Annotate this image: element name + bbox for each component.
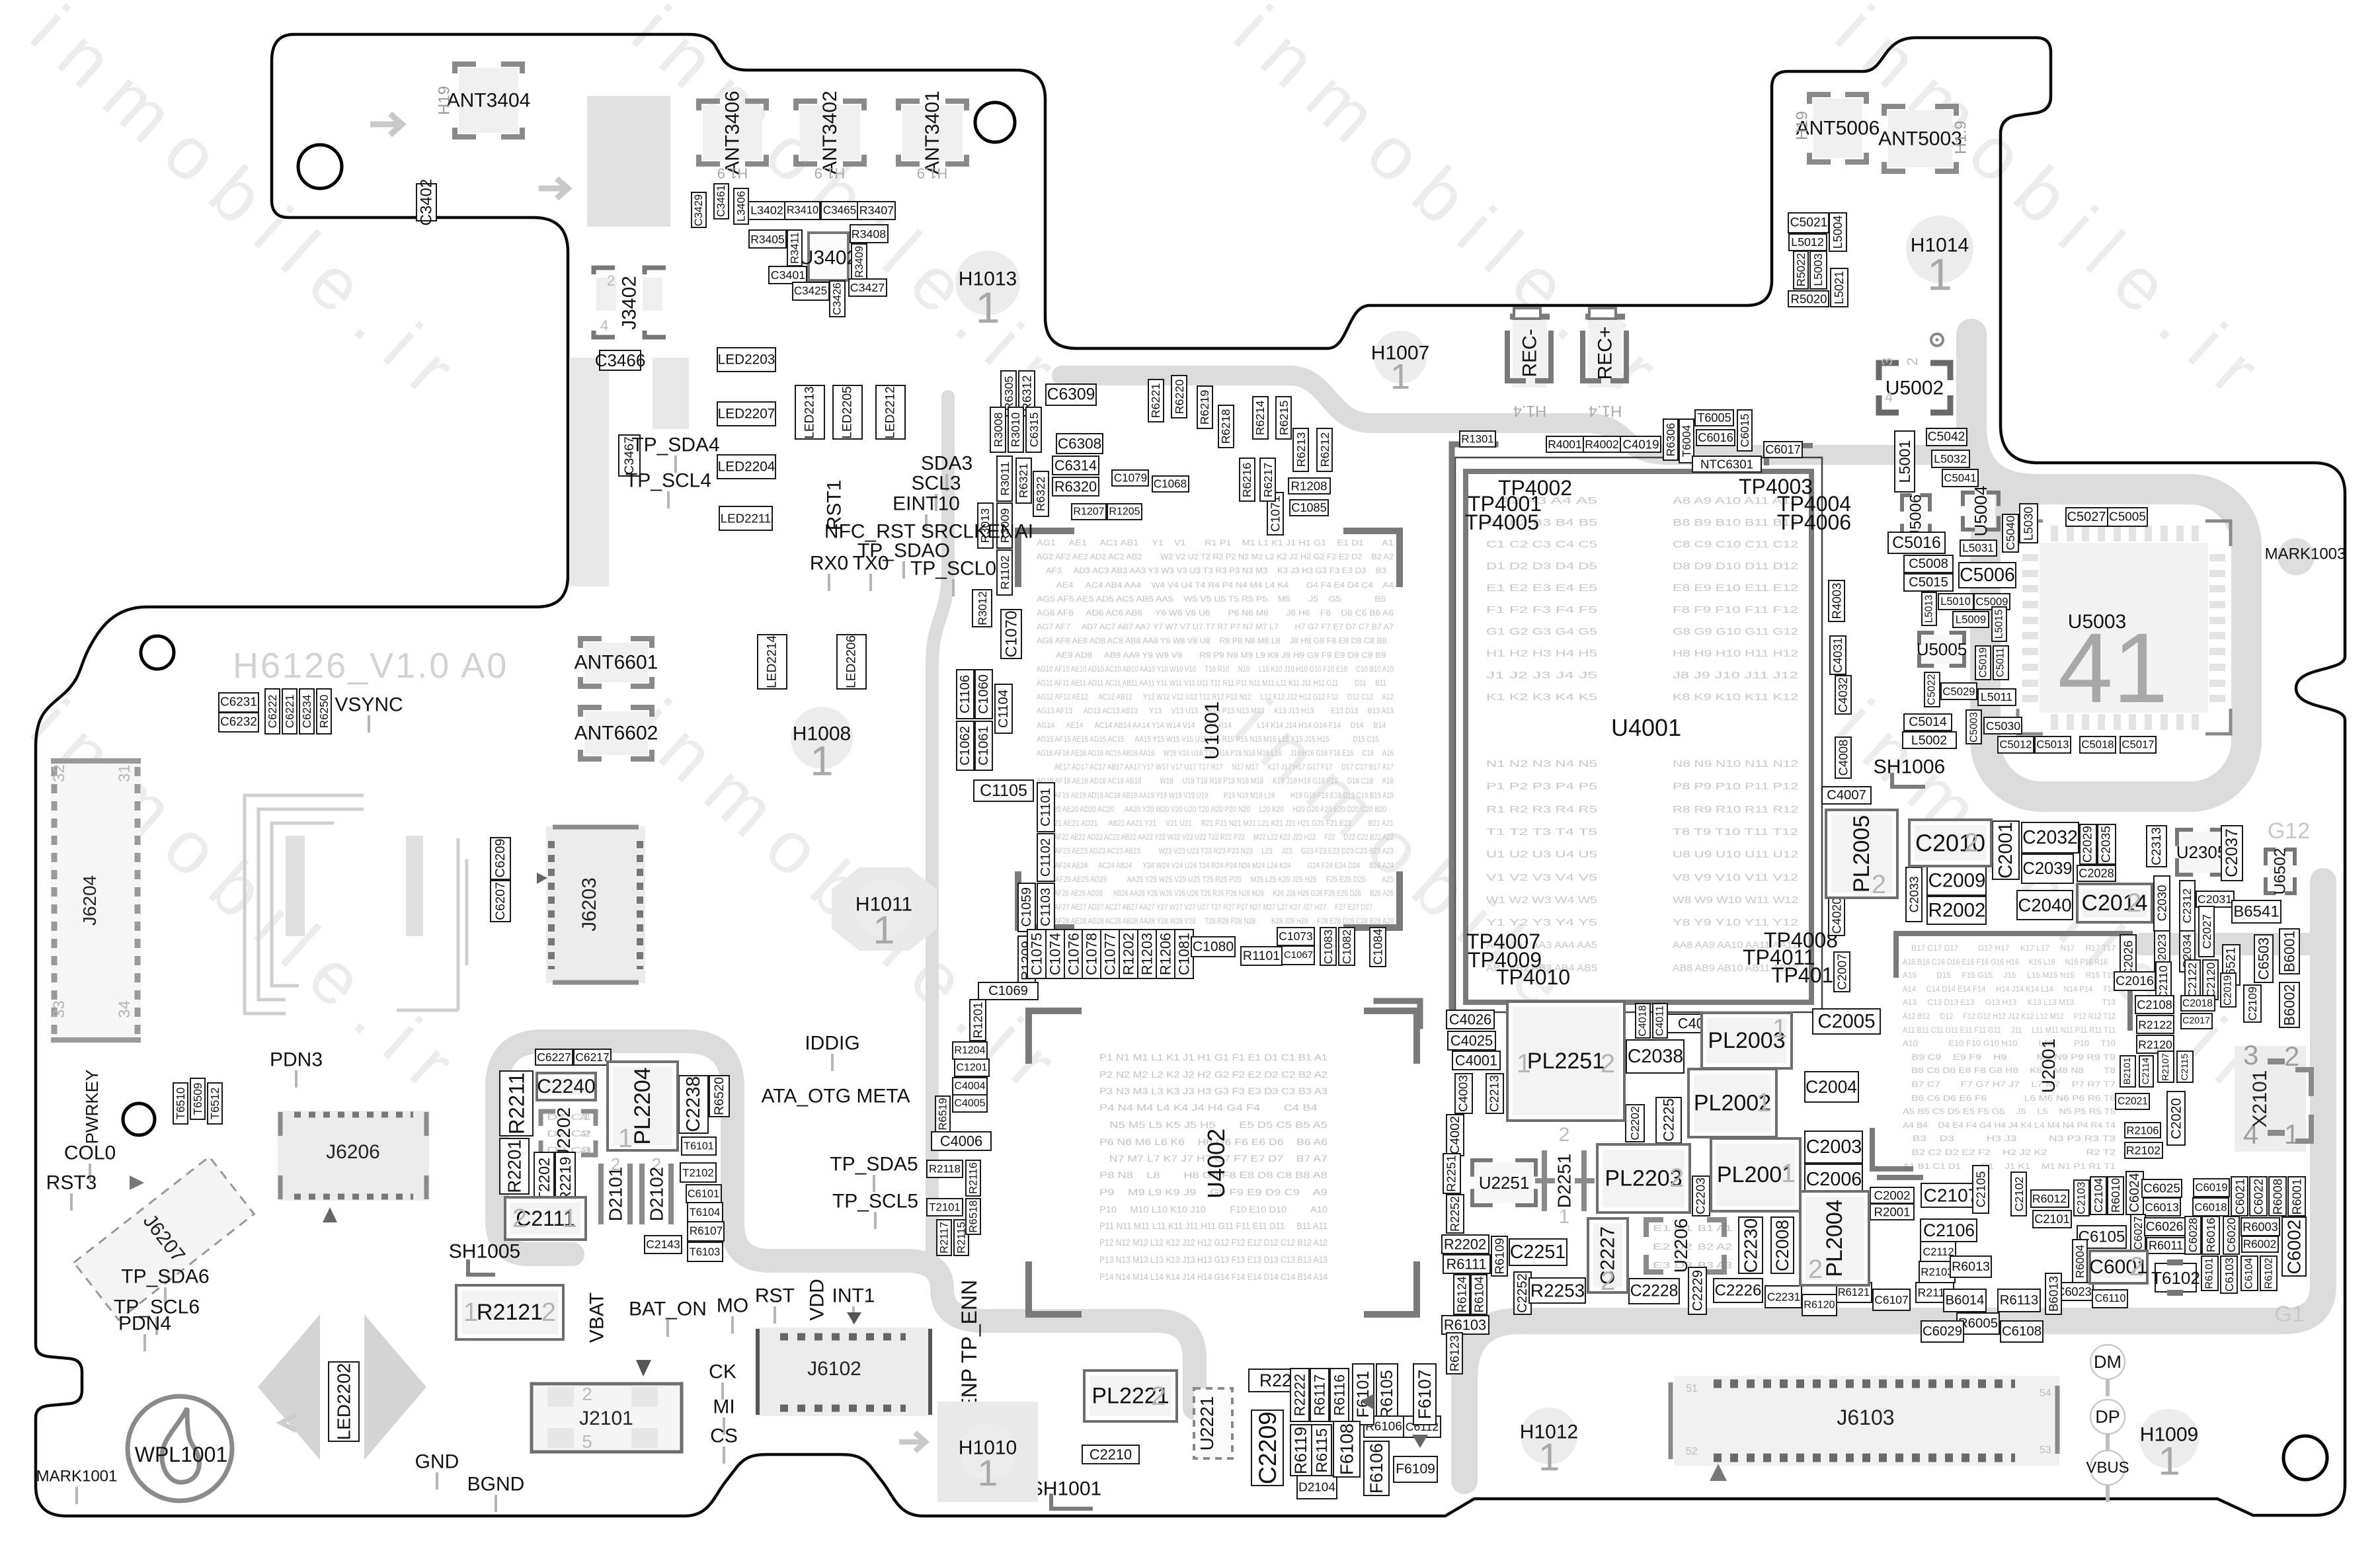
svg-text:C2210: C2210 xyxy=(1090,1447,1132,1463)
svg-text:C2103: C2103 xyxy=(2075,1181,2088,1214)
svg-text:C5012: C5012 xyxy=(1999,738,2032,751)
svg-text:RST3: RST3 xyxy=(46,1172,97,1194)
svg-text:C2003: C2003 xyxy=(1806,1136,1862,1158)
svg-text:PL2204: PL2204 xyxy=(630,1067,655,1144)
svg-text:R5022: R5022 xyxy=(1794,253,1807,287)
svg-text:A1 B1 C1 D1 G1 J1 K1: A1 B1 C1 D1 G1 J1 K1 M1 N1 P1 R1 T1 xyxy=(1903,1163,2116,1171)
svg-text:C4004: C4004 xyxy=(954,1081,985,1092)
svg-text:A15 D15 F15 G15: A15 D15 F15 G15 J15 L15 M15 N15 R15 T15 xyxy=(1903,972,2116,980)
svg-text:PL2251: PL2251 xyxy=(1527,1049,1605,1074)
svg-text:2: 2 xyxy=(582,1384,592,1404)
svg-text:A2: A2 xyxy=(580,1129,591,1138)
svg-text:AG7 AF7 AD7 AC7 AB7 AA7 Y7: AG7 AF7 AD7 AC7 AB7 AA7 Y7 W7 V7 U7 T7 R… xyxy=(1037,623,1394,631)
svg-text:RST: RST xyxy=(755,1285,795,1307)
svg-text:AG10 AF10 AE10 AD10 AC10 AB10: AG10 AF10 AE10 AD10 AC10 AB10 AA10 Y10 W… xyxy=(1037,666,1394,674)
svg-text:R2121: R2121 xyxy=(477,1300,543,1325)
svg-text:C1060: C1060 xyxy=(976,674,991,714)
svg-text:T6512: T6512 xyxy=(208,1088,221,1120)
svg-text:AG23 AF23 AE23 AD23 AC23 AB23: AG23 AF23 AE23 AD23 AC23 AB23 W23 V23 U2… xyxy=(1037,848,1394,855)
svg-text:SH1001: SH1001 xyxy=(1030,1478,1101,1500)
svg-text:AE9 AD9 AB9 AA9 Y9 W9 V9: AE9 AD9 AB9 AA9 Y9 W9 V9 R9 P9 N9 M9 L9 … xyxy=(1037,652,1394,660)
svg-text:U8 U9 U10 U11 U12: U8 U9 U10 U11 U12 xyxy=(1673,849,1798,860)
svg-text:AG28 AF28 AE28 AD28 AC28 AB28: AG28 AF28 AE28 AD28 AC28 AB28 AA28 Y28 W… xyxy=(1037,918,1394,926)
svg-text:R2252: R2252 xyxy=(1448,1196,1462,1232)
svg-text:INT1: INT1 xyxy=(832,1285,875,1307)
svg-text:C2115: C2115 xyxy=(2180,1054,2190,1081)
svg-text:C4005: C4005 xyxy=(954,1098,985,1109)
svg-text:C3461: C3461 xyxy=(715,185,727,217)
svg-text:R6004: R6004 xyxy=(2073,1244,2086,1278)
svg-text:1: 1 xyxy=(976,283,1000,332)
svg-text:R2118: R2118 xyxy=(929,1163,961,1175)
svg-text:AF20 AE20 AD20 AC20 AA20: AF20 AE20 AD20 AC20 AA20 Y20 W20 V20 U20… xyxy=(1037,806,1394,814)
svg-text:U2251: U2251 xyxy=(1479,1173,1530,1193)
svg-text:C2122: C2122 xyxy=(2186,963,2199,998)
svg-text:L3402: L3402 xyxy=(750,204,783,217)
svg-text:LED2206: LED2206 xyxy=(845,635,859,688)
svg-text:T6510: T6510 xyxy=(174,1088,187,1120)
svg-text:AG26 AF26 AE26 AD26 AB26: AG26 AF26 AE26 AD26 AB26 AA26 Y26 W26 V2… xyxy=(1037,890,1394,898)
svg-text:K8 K9 K10 K11 K12: K8 K9 K10 K11 K12 xyxy=(1673,692,1798,703)
svg-text:SH1006: SH1006 xyxy=(1874,756,1945,778)
svg-text:C2225: C2225 xyxy=(1661,1098,1677,1141)
svg-text:H1.9: H1.9 xyxy=(1952,121,1970,155)
svg-text:R2103: R2103 xyxy=(1921,1266,1953,1279)
svg-text:R2202: R2202 xyxy=(1444,1236,1486,1253)
svg-text:A16 B16 C16 D16 E16 F16 G16 H1: A16 B16 C16 D16 E16 F16 G16 H16 K16 L16 … xyxy=(1903,959,2116,967)
svg-text:53: 53 xyxy=(2040,1445,2051,1456)
svg-text:R2219: R2219 xyxy=(557,1157,574,1203)
svg-text:LED2204: LED2204 xyxy=(718,459,775,475)
svg-text:E1 E2 E3 E4 E5: E1 E2 E3 E4 E5 xyxy=(1486,582,1597,594)
svg-text:C1085: C1085 xyxy=(1291,501,1327,514)
svg-text:LED2214: LED2214 xyxy=(766,635,779,688)
svg-text:C6021: C6021 xyxy=(2233,1179,2247,1215)
svg-text:AG1 AE1 AC1 AB1 Y1: AG1 AE1 AC1 AB1 Y1 V1 R1 P1 M1 L1 K1 J1 … xyxy=(1037,539,1394,547)
svg-text:L5003: L5003 xyxy=(1811,253,1825,286)
svg-text:F6106: F6106 xyxy=(1367,1443,1386,1493)
svg-text:C2231: C2231 xyxy=(1767,1291,1800,1304)
svg-text:C1077: C1077 xyxy=(1102,933,1119,975)
svg-text:C3402: C3402 xyxy=(418,179,436,226)
svg-text:C4019: C4019 xyxy=(1622,438,1659,452)
svg-text:AG6 AF6 AD6 AC6 AB6 Y6: AG6 AF6 AD6 AC6 AB6 Y6 W6 V6 U6 P6 N6 M6… xyxy=(1037,610,1394,617)
svg-text:J6102: J6102 xyxy=(807,1358,861,1380)
svg-text:C2112: C2112 xyxy=(1923,1246,1954,1258)
svg-text:T2202: T2202 xyxy=(535,1158,553,1201)
svg-text:2: 2 xyxy=(1151,1382,1166,1411)
svg-text:C1082: C1082 xyxy=(1340,930,1353,964)
svg-text:C6232: C6232 xyxy=(220,715,257,729)
svg-text:U2305: U2305 xyxy=(2176,842,2227,862)
svg-text:R6216: R6216 xyxy=(1240,463,1253,498)
svg-text:2: 2 xyxy=(1808,1255,1823,1284)
svg-text:H1.9: H1.9 xyxy=(814,165,845,182)
svg-text:J6204: J6204 xyxy=(79,875,100,926)
svg-text:C5029: C5029 xyxy=(1942,686,1975,698)
svg-text:C6104: C6104 xyxy=(2244,1257,2255,1289)
svg-text:LED2205: LED2205 xyxy=(841,386,855,438)
svg-text:C2040: C2040 xyxy=(2018,895,2071,916)
svg-text:R5020: R5020 xyxy=(1790,292,1827,306)
svg-text:J6206: J6206 xyxy=(326,1141,380,1163)
svg-text:TP_SDA6: TP_SDA6 xyxy=(121,1266,209,1288)
svg-text:GND: GND xyxy=(415,1451,459,1473)
svg-text:ATA_OTG META: ATA_OTG META xyxy=(761,1086,910,1107)
svg-text:C1069: C1069 xyxy=(988,984,1028,998)
svg-text:R1207: R1207 xyxy=(1073,506,1104,518)
svg-text:W8 W9 W10 W11 W12: W8 W9 W10 W11 W12 xyxy=(1673,895,1798,906)
svg-text:ANT3406: ANT3406 xyxy=(722,91,744,175)
svg-text:R6013: R6013 xyxy=(1952,1259,1990,1274)
svg-text:AE4 AC4 AB4 AA4 W4 V4 U: AE4 AC4 AB4 AA4 W4 V4 U4 T4 R4 P4 N4 M4 … xyxy=(1037,582,1394,590)
svg-text:C4008: C4008 xyxy=(1837,739,1850,775)
svg-text:AG22 AF22 AE22 AD22 AC22 AB22: AG22 AF22 AE22 AD22 AC22 AB22 AA22 Y22 W… xyxy=(1037,834,1394,842)
svg-text:R6117: R6117 xyxy=(1312,1374,1328,1416)
svg-text:P8 P9 P10 P11 P12: P8 P9 P10 P11 P12 xyxy=(1673,781,1798,792)
svg-text:C2035: C2035 xyxy=(2100,826,2114,863)
svg-text:C2006: C2006 xyxy=(1806,1169,1862,1190)
svg-text:C3425: C3425 xyxy=(794,285,827,298)
svg-text:TP4006: TP4006 xyxy=(1777,510,1851,534)
svg-text:C2037: C2037 xyxy=(2223,828,2241,877)
svg-text:J2101: J2101 xyxy=(579,1408,633,1429)
svg-text:R6214: R6214 xyxy=(1253,401,1267,436)
svg-text:R3410: R3410 xyxy=(787,204,818,216)
svg-text:L5031: L5031 xyxy=(1962,542,1994,555)
svg-text:REC+: REC+ xyxy=(1595,327,1616,380)
svg-text:C6222: C6222 xyxy=(266,695,279,729)
svg-text:C2240: C2240 xyxy=(537,1076,595,1097)
svg-text:C6022: C6022 xyxy=(2252,1179,2266,1215)
svg-text:L5011: L5011 xyxy=(1981,690,2012,703)
svg-text:D2101: D2101 xyxy=(606,1167,626,1222)
svg-text:1: 1 xyxy=(1517,1049,1531,1078)
svg-text:R6518: R6518 xyxy=(967,1200,980,1232)
svg-text:R6320: R6320 xyxy=(1054,479,1097,495)
svg-text:C6013: C6013 xyxy=(2145,1201,2179,1214)
svg-text:C2252: C2252 xyxy=(1515,1273,1530,1313)
svg-text:R2251: R2251 xyxy=(1445,1155,1459,1192)
svg-text:T6005: T6005 xyxy=(1697,411,1731,424)
svg-text:C2031: C2031 xyxy=(2198,893,2233,906)
svg-text:R6305: R6305 xyxy=(1002,376,1015,411)
svg-text:P3 N3 M3 L3 K3 J3 H3 G3 F3 E3: P3 N3 M3 L3 K3 J3 H3 G3 F3 E3 D3 C3 B3 A… xyxy=(1099,1086,1328,1096)
svg-text:R6520: R6520 xyxy=(712,1077,727,1115)
svg-text:B6002: B6002 xyxy=(2281,984,2298,1025)
svg-text:MARK1001: MARK1001 xyxy=(36,1468,118,1486)
svg-text:P14 N14 M14 L14 K14 J14 H14 G1: P14 N14 M14 L14 K14 J14 H14 G14 F14 E14 … xyxy=(1099,1272,1328,1282)
svg-text:J6203: J6203 xyxy=(578,877,600,932)
svg-text:C4018: C4018 xyxy=(1638,1005,1649,1036)
svg-text:C6025: C6025 xyxy=(2143,1182,2180,1196)
svg-text:C5016: C5016 xyxy=(1892,534,1941,552)
svg-text:F6101: F6101 xyxy=(1354,1371,1372,1418)
svg-text:A10 E10 F10 G10 H1: A10 E10 F10 G10 H10 L10 P10 T10 xyxy=(1903,1040,2116,1048)
svg-text:VSYNC: VSYNC xyxy=(335,694,403,716)
svg-text:C2230: C2230 xyxy=(1741,1218,1761,1273)
svg-text:IDDIG: IDDIG xyxy=(805,1033,859,1054)
svg-text:C6017: C6017 xyxy=(1765,443,1801,456)
svg-text:B6541: B6541 xyxy=(2233,903,2279,921)
svg-text:T6101: T6101 xyxy=(684,1141,713,1152)
svg-text:1: 1 xyxy=(1559,1206,1570,1228)
svg-text:C1075: C1075 xyxy=(1029,933,1045,975)
svg-text:R3011: R3011 xyxy=(998,461,1011,495)
svg-text:C1070: C1070 xyxy=(1003,611,1021,658)
svg-text:R1203: R1203 xyxy=(1139,933,1156,975)
svg-text:C1059: C1059 xyxy=(1019,887,1034,927)
svg-text:C2110: C2110 xyxy=(2157,965,2170,999)
svg-text:C1080: C1080 xyxy=(1193,939,1234,955)
svg-text:C2032: C2032 xyxy=(2022,827,2078,848)
svg-text:C1067: C1067 xyxy=(1284,950,1313,961)
svg-text:C5027: C5027 xyxy=(2067,510,2106,524)
svg-text:C6020: C6020 xyxy=(2225,1218,2238,1253)
svg-text:AG24 AF24 AE24 AC24 AB24: AG24 AF24 AE24 AC24 AB24 Y24 W24 V24 U24… xyxy=(1037,862,1394,870)
svg-text:5: 5 xyxy=(582,1431,592,1452)
svg-text:C5005: C5005 xyxy=(2109,510,2146,524)
svg-text:C2213: C2213 xyxy=(1488,1075,1502,1112)
svg-text:C2107: C2107 xyxy=(1924,1185,1979,1206)
svg-text:R1102: R1102 xyxy=(998,555,1011,589)
svg-text:R6102: R6102 xyxy=(2264,1257,2275,1289)
svg-text:H1011: H1011 xyxy=(855,894,912,916)
svg-text:R6113: R6113 xyxy=(2000,1293,2039,1308)
svg-text:R6121: R6121 xyxy=(1838,1287,1870,1298)
svg-text:51: 51 xyxy=(1686,1383,1698,1394)
svg-text:J3402: J3402 xyxy=(619,276,641,330)
svg-text:R6215: R6215 xyxy=(1277,401,1290,436)
svg-text:H1.4: H1.4 xyxy=(1513,402,1547,420)
svg-text:P12 N12 M12 L12 K12 J12 H12 G1: P12 N12 M12 L12 K12 J12 H12 G12 F12 E12 … xyxy=(1099,1238,1328,1248)
svg-text:C4026: C4026 xyxy=(1449,1012,1491,1028)
svg-text:WPL1001: WPL1001 xyxy=(135,1443,228,1466)
svg-text:C2018: C2018 xyxy=(2182,998,2213,1010)
svg-text:R6519: R6519 xyxy=(937,1097,949,1130)
svg-text:C2029: C2029 xyxy=(2081,826,2095,863)
svg-text:32: 32 xyxy=(50,764,68,782)
svg-text:31: 31 xyxy=(116,764,134,782)
svg-text:C6018: C6018 xyxy=(2194,1201,2227,1214)
svg-text:U3402: U3402 xyxy=(799,247,857,269)
svg-text:C5018: C5018 xyxy=(2081,738,2114,751)
svg-text:R2102: R2102 xyxy=(2126,1144,2161,1157)
svg-text:P4 N4 M4 L4 K4 J4 H4 G4 F4: P4 N4 M4 L4 K4 J4 H4 G4 F4 C4 B4 xyxy=(1099,1103,1328,1113)
svg-text:R6115: R6115 xyxy=(1313,1428,1330,1472)
svg-text:C6315: C6315 xyxy=(1027,413,1041,448)
svg-text:C6026: C6026 xyxy=(2146,1220,2184,1234)
svg-text:L5015: L5015 xyxy=(1994,610,2005,639)
svg-text:R6001: R6001 xyxy=(2290,1179,2304,1215)
svg-text:T6509: T6509 xyxy=(191,1083,204,1115)
svg-text:VDD: VDD xyxy=(807,1279,828,1320)
svg-text:TP_SDA4: TP_SDA4 xyxy=(631,434,719,456)
svg-text:R4003: R4003 xyxy=(1830,582,1844,619)
svg-text:AE17 AD17 AC17 AB17 AA17 Y17 W: AE17 AD17 AC17 AB17 AA17 Y17 W17 V17 U17… xyxy=(1037,764,1394,772)
svg-text:AG27 AF27 AE27 AD27 AC27 AB27: AG27 AF27 AE27 AD27 AC27 AB27 AA27 Y27 W… xyxy=(1037,904,1394,912)
svg-text:REC-: REC- xyxy=(1519,329,1541,377)
svg-text:R2116: R2116 xyxy=(967,1162,980,1194)
svg-text:C3427: C3427 xyxy=(850,281,885,294)
svg-text:J8 J9 J10 J11 J12: J8 J9 J10 J11 J12 xyxy=(1673,670,1798,681)
svg-text:R4002: R4002 xyxy=(1585,438,1619,451)
svg-text:C1104: C1104 xyxy=(996,690,1011,728)
svg-text:TP_SCL5: TP_SCL5 xyxy=(832,1191,918,1213)
svg-text:V1 V2 V3 V4 V5: V1 V2 V3 V4 V5 xyxy=(1486,872,1597,883)
svg-text:R6116: R6116 xyxy=(1331,1374,1348,1416)
svg-text:LED2202: LED2202 xyxy=(334,1363,354,1441)
svg-text:LED2203: LED2203 xyxy=(718,352,775,368)
svg-text:R1202: R1202 xyxy=(1121,933,1137,975)
svg-text:1: 1 xyxy=(1927,249,1952,299)
svg-text:H1007: H1007 xyxy=(1371,342,1429,364)
svg-text:C5008: C5008 xyxy=(1909,557,1948,571)
svg-text:C6028: C6028 xyxy=(2186,1218,2200,1253)
svg-text:R6312: R6312 xyxy=(1020,375,1034,411)
svg-text:L3406: L3406 xyxy=(735,191,748,221)
svg-text:T6102: T6102 xyxy=(2151,1268,2200,1288)
svg-text:MO: MO xyxy=(717,1295,748,1317)
svg-text:B17 C17 D17 G17 H17: B17 C17 D17 G17 H17 K17 L17 N17 R17 T17 xyxy=(1903,945,2116,953)
svg-text:52: 52 xyxy=(1686,1446,1698,1457)
svg-text:C2005: C2005 xyxy=(1817,1011,1875,1033)
svg-text:R6220: R6220 xyxy=(1173,379,1186,415)
svg-text:MARK1003: MARK1003 xyxy=(2265,545,2346,563)
svg-text:4: 4 xyxy=(600,317,608,334)
svg-text:C6015: C6015 xyxy=(1738,414,1751,448)
svg-text:C4032: C4032 xyxy=(1837,677,1850,713)
svg-text:C2001: C2001 xyxy=(1995,822,2016,879)
svg-text:R3409: R3409 xyxy=(853,246,865,278)
svg-text:B3 D3 H3 J3: B3 D3 H3 J3 N3 P3 R3 T3 xyxy=(1903,1135,2116,1143)
svg-text:R2120: R2120 xyxy=(2138,1038,2172,1051)
svg-text:C1102: C1102 xyxy=(1039,838,1053,877)
svg-text:AF3 AD3 AC3 AB3 AA3 Y3 W3: AF3 AD3 AC3 AB3 AA3 Y3 W3 V3 U3 T3 R3 P3… xyxy=(1037,567,1394,575)
svg-text:R6250: R6250 xyxy=(317,695,331,729)
svg-text:A4 B4 D4 E4 F4 G4 H4 J4 K4: A4 B4 D4 E4 F4 G4 H4 J4 K4 L4 M4 N4 P4 R… xyxy=(1903,1122,2116,1130)
svg-text:C2009: C2009 xyxy=(1928,870,1986,892)
svg-text:R6003: R6003 xyxy=(2242,1220,2278,1234)
svg-text:C1101: C1101 xyxy=(1039,788,1053,826)
svg-text:R6219: R6219 xyxy=(1198,390,1211,425)
svg-text:SH1005: SH1005 xyxy=(449,1241,520,1263)
svg-text:C3465: C3465 xyxy=(823,204,856,217)
svg-text:R2222: R2222 xyxy=(1292,1374,1308,1416)
svg-text:TP4010: TP4010 xyxy=(1496,965,1570,989)
svg-text:U5004: U5004 xyxy=(1971,486,1991,537)
svg-text:2: 2 xyxy=(541,1298,556,1327)
svg-text:R1 R2 R3 R4 R5: R1 R2 R3 R4 R5 xyxy=(1486,804,1597,815)
svg-text:T6103: T6103 xyxy=(690,1246,720,1258)
svg-text:C1 C2 C3 C4 C5: C1 C2 C3 C4 C5 xyxy=(1486,539,1597,550)
svg-text:R2211: R2211 xyxy=(504,1072,529,1134)
svg-text:R2117: R2117 xyxy=(938,1222,951,1253)
svg-text:C1081: C1081 xyxy=(1176,933,1193,975)
svg-text:F6109: F6109 xyxy=(1396,1462,1435,1477)
svg-text:ANT3402: ANT3402 xyxy=(819,91,841,175)
svg-text:1: 1 xyxy=(810,738,833,784)
svg-text:3: 3 xyxy=(2243,1039,2258,1070)
svg-text:U5005: U5005 xyxy=(1917,639,1967,659)
svg-text:ANT5003: ANT5003 xyxy=(1878,128,1962,150)
svg-text:R6217: R6217 xyxy=(1261,463,1275,498)
svg-text:H6126_V1.0 A0: H6126_V1.0 A0 xyxy=(233,646,508,686)
svg-text:C1105: C1105 xyxy=(980,781,1027,800)
svg-text:C5006: C5006 xyxy=(1960,565,2015,586)
svg-text:PWRKEY: PWRKEY xyxy=(82,1070,102,1144)
svg-text:R6105: R6105 xyxy=(1378,1370,1396,1419)
svg-text:C6207: C6207 xyxy=(493,882,508,920)
svg-text:R6124: R6124 xyxy=(1455,1276,1469,1312)
svg-text:N1 N2 N3 N4 N5: N1 N2 N3 N4 N5 xyxy=(1486,758,1597,770)
svg-text:R6011: R6011 xyxy=(2149,1239,2183,1252)
svg-text:H1.9: H1.9 xyxy=(917,165,947,182)
svg-text:C4020: C4020 xyxy=(1830,897,1844,934)
svg-text:G12: G12 xyxy=(2268,818,2310,844)
svg-text:2: 2 xyxy=(2129,1252,2144,1281)
svg-text:2: 2 xyxy=(1904,358,1921,366)
svg-text:C5022: C5022 xyxy=(1926,674,1938,705)
svg-text:R1201: R1201 xyxy=(971,1002,985,1038)
svg-text:TP4005: TP4005 xyxy=(1465,510,1539,534)
svg-text:B6001: B6001 xyxy=(2281,930,2298,972)
svg-text:R6002: R6002 xyxy=(2243,1238,2276,1251)
svg-text:1: 1 xyxy=(563,1204,577,1233)
svg-text:C6308: C6308 xyxy=(1058,436,1101,452)
svg-text:L5013: L5013 xyxy=(1924,595,1935,623)
svg-text:C5009: C5009 xyxy=(1975,596,2008,608)
svg-text:R6107: R6107 xyxy=(690,1225,723,1238)
svg-text:C2209: C2209 xyxy=(1253,1412,1281,1484)
svg-text:H1009: H1009 xyxy=(2140,1424,2198,1446)
svg-text:2: 2 xyxy=(1559,1124,1570,1146)
svg-text:1: 1 xyxy=(1772,1014,1787,1043)
svg-text:C1074: C1074 xyxy=(1047,933,1064,975)
svg-text:C2028: C2028 xyxy=(2079,867,2114,880)
svg-text:1: 1 xyxy=(1757,1088,1771,1117)
svg-text:R1208: R1208 xyxy=(1290,479,1327,493)
svg-text:AG5 AF5 AE5 AD5 AC5 AB5 AA5: AG5 AF5 AE5 AD5 AC5 AB5 AA5 W5 V5 U5 T5 … xyxy=(1037,596,1394,604)
svg-text:W1 W2 W3 W4 W5: W1 W2 W3 W4 W5 xyxy=(1486,895,1597,906)
svg-text:C5041: C5041 xyxy=(1944,472,1976,485)
svg-text:AG2 AF2 AE2 AD2 AC2 AB2: AG2 AF2 AE2 AD2 AC2 AB2 W2 V2 U2 T2 R2 P… xyxy=(1037,553,1394,561)
svg-text:Y1 Y2 Y3 Y4 Y5: Y1 Y2 Y3 Y4 Y5 xyxy=(1486,917,1597,928)
svg-text:C6024: C6024 xyxy=(2127,1173,2142,1213)
svg-text:SDA3: SDA3 xyxy=(921,453,972,475)
svg-text:T2101: T2101 xyxy=(929,1201,960,1214)
svg-text:SCL3: SCL3 xyxy=(911,473,961,495)
svg-text:H1012: H1012 xyxy=(1520,1421,1578,1443)
svg-text:C2030: C2030 xyxy=(2155,885,2169,921)
svg-text:TX0: TX0 xyxy=(852,553,889,575)
svg-text:P2 N2 M2 L2 K2 J2 H2 G2 F2 E2: P2 N2 M2 L2 K2 J2 H2 G2 F2 E2 D2 C2 B2 A… xyxy=(1099,1070,1328,1080)
svg-text:T8 T9 T10 T11 T12: T8 T9 T10 T11 T12 xyxy=(1673,826,1798,838)
svg-text:B8 C8 D8 E8 F8 G8 H8 K8: B8 C8 D8 E8 F8 G8 H8 K8 M8 N8 T8 xyxy=(1903,1067,2116,1075)
svg-text:C2017: C2017 xyxy=(2182,1015,2210,1026)
svg-text:R3010: R3010 xyxy=(1009,413,1022,448)
svg-text:C6221: C6221 xyxy=(283,695,296,729)
svg-text:AG11 AF11 AE11 AD11 AC11 AB11: AG11 AF11 AE11 AD11 AC11 AB11 AA11 Y11 W… xyxy=(1037,680,1394,688)
svg-text:C6227: C6227 xyxy=(537,1051,571,1064)
svg-text:H1008: H1008 xyxy=(793,723,851,745)
svg-text:R3012: R3012 xyxy=(976,591,989,625)
svg-text:C2202: C2202 xyxy=(1628,1106,1642,1140)
svg-text:L5002: L5002 xyxy=(1911,733,1947,748)
svg-text:AG8 AF8 AE8 AD8 AC8 AB8 AA8 Y8: AG8 AF8 AE8 AD8 AC8 AB8 AA8 Y8 W8 V8 U8 … xyxy=(1037,637,1394,645)
svg-text:C2038: C2038 xyxy=(1628,1046,1684,1067)
svg-text:PL2005: PL2005 xyxy=(1849,815,1874,893)
